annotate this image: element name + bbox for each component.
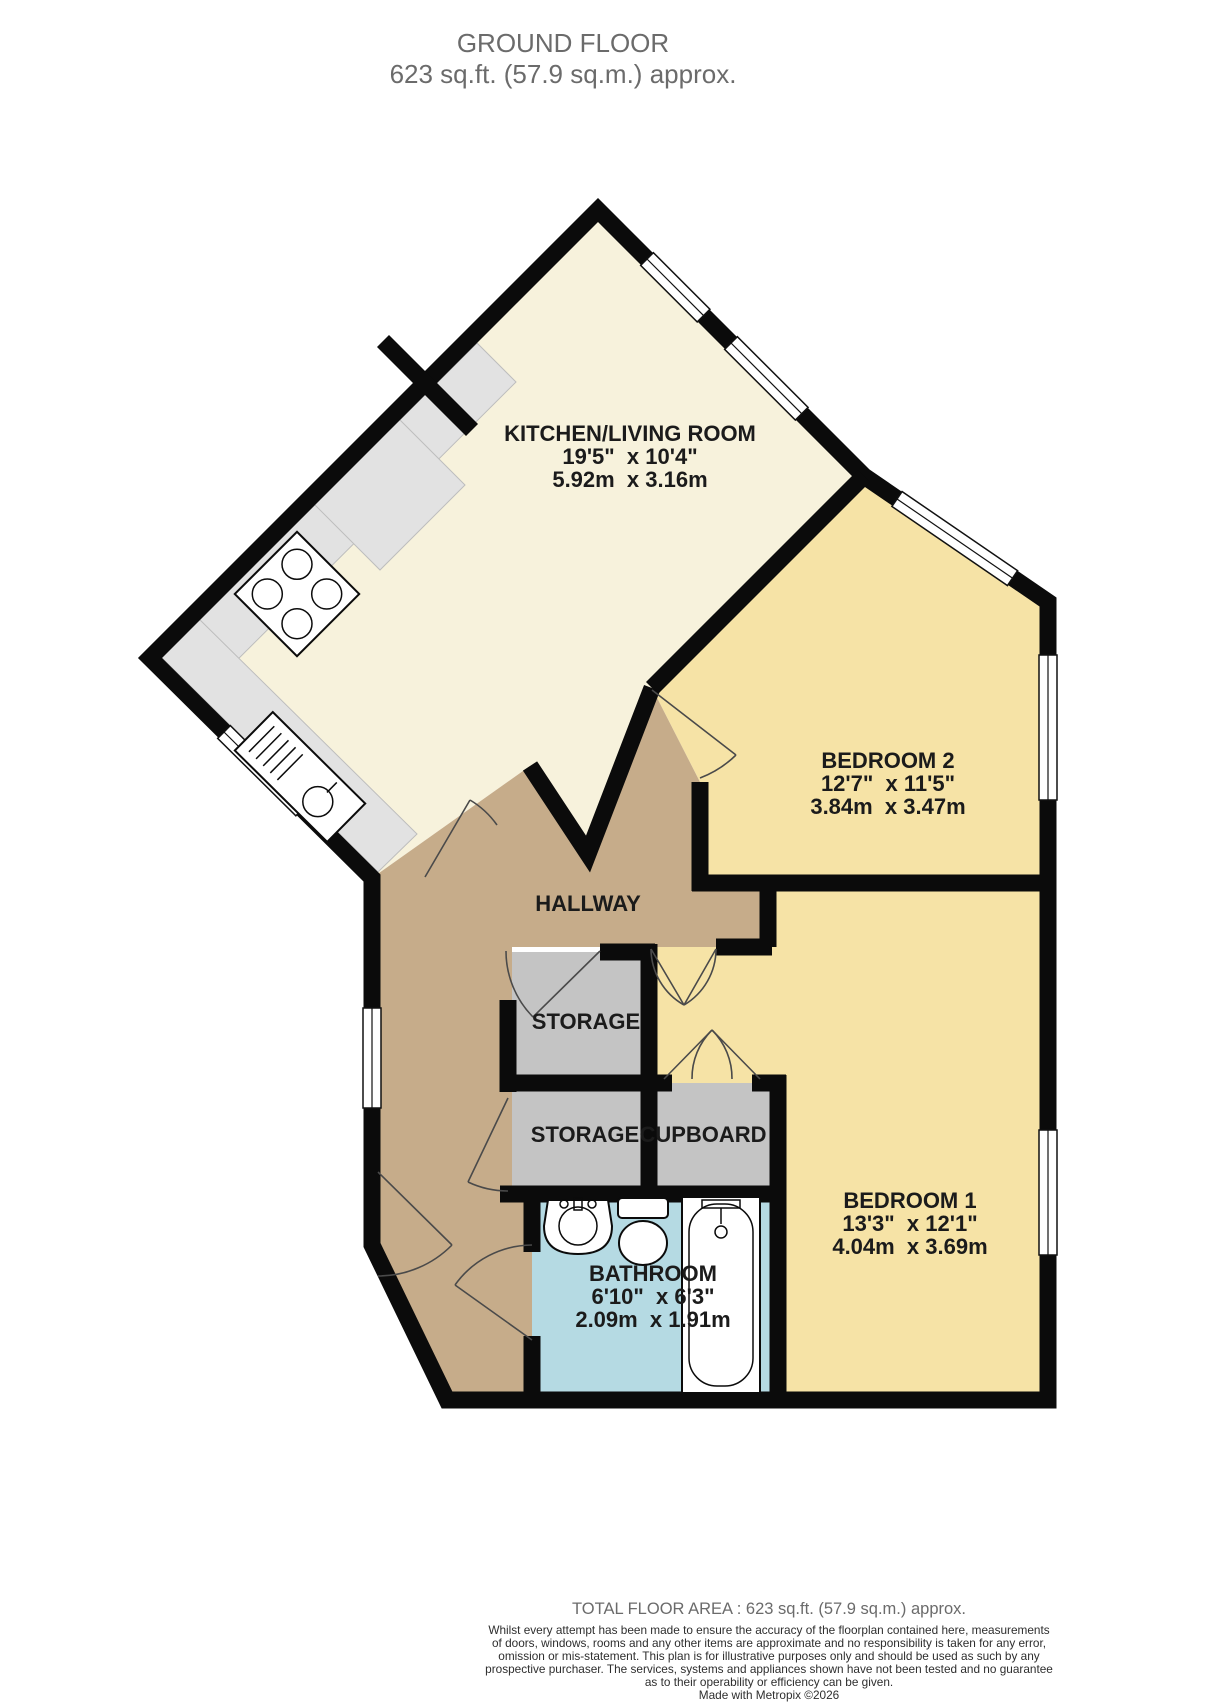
hallway-side-window — [363, 1008, 381, 1108]
plan-title: GROUND FLOOR — [457, 28, 669, 58]
bathroom-dim-imperial: 6'10" x 6'3" — [591, 1284, 714, 1309]
floorplan-page: GROUND FLOOR 623 sq.ft. (57.9 sq.m.) app… — [0, 0, 1214, 1702]
floorplan-canvas: GROUND FLOOR 623 sq.ft. (57.9 sq.m.) app… — [0, 0, 1214, 1702]
bedroom2-side-window — [1039, 655, 1057, 800]
kitchen-living-label: KITCHEN/LIVING ROOM — [504, 421, 756, 446]
storage2-label: STORAGE — [531, 1122, 639, 1147]
disclaimer-line: omission or mis-statement. This plan is … — [498, 1649, 1039, 1663]
bedroom1-label: BEDROOM 1 — [843, 1188, 976, 1213]
bedroom2-dim-imperial: 12'7" x 11'5" — [821, 771, 955, 796]
storage1-label: STORAGE — [532, 1009, 640, 1034]
hallway-label: HALLWAY — [535, 891, 641, 916]
bedroom2-label: BEDROOM 2 — [821, 748, 954, 773]
bathroom-sink-icon — [544, 1198, 612, 1254]
bathroom-dim-metric: 2.09m x 1.91m — [575, 1307, 730, 1332]
metropix-credit: Made with Metropix ©2026 — [699, 1688, 840, 1702]
bedroom2-dim-metric: 3.84m x 3.47m — [810, 794, 965, 819]
bedroom1-dim-imperial: 13'3" x 12'1" — [842, 1211, 977, 1236]
toilet-icon — [618, 1198, 668, 1265]
cupboard-label: CUPBOARD — [639, 1122, 766, 1147]
disclaimer-line: as to their operability or efficiency ca… — [645, 1675, 893, 1689]
disclaimer-line: of doors, windows, rooms and any other i… — [492, 1636, 1046, 1650]
kitchen-living-dim-metric: 5.92m x 3.16m — [552, 467, 707, 492]
bedroom1-side-window — [1039, 1130, 1057, 1255]
plan-subtitle: 623 sq.ft. (57.9 sq.m.) approx. — [390, 59, 737, 89]
disclaimer-line: prospective purchaser. The services, sys… — [485, 1662, 1053, 1676]
kitchen-living-dim-imperial: 19'5" x 10'4" — [562, 444, 697, 469]
bedroom1-dim-metric: 4.04m x 3.69m — [832, 1234, 987, 1259]
total-floor-area: TOTAL FLOOR AREA : 623 sq.ft. (57.9 sq.m… — [572, 1600, 966, 1618]
bathroom-label: BATHROOM — [589, 1261, 717, 1286]
disclaimer-line: Whilst every attempt has been made to en… — [488, 1623, 1049, 1637]
